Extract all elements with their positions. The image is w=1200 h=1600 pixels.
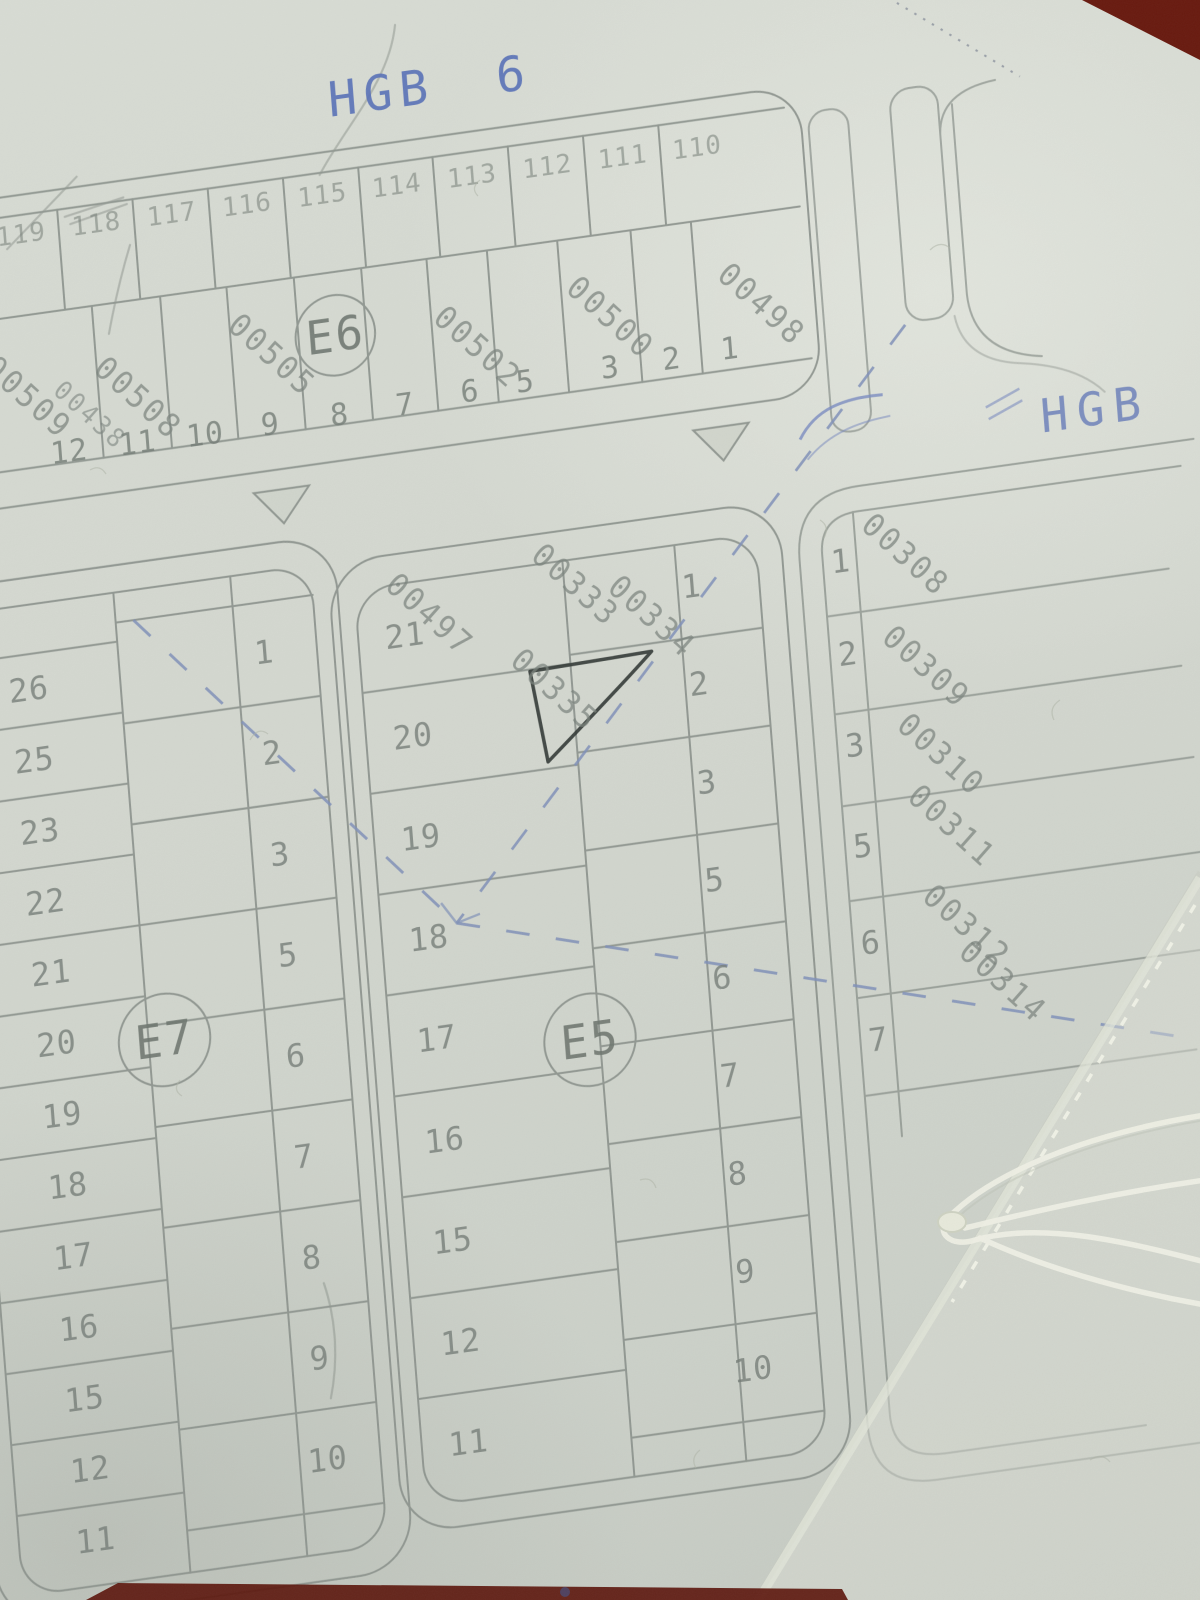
- grain-texture: [0, 0, 1200, 1600]
- map-photo: HGB 6 HGB E6 E7 E5 119 118 117 116 115 1…: [0, 0, 1200, 1600]
- photo-artifacts: [0, 0, 1200, 1600]
